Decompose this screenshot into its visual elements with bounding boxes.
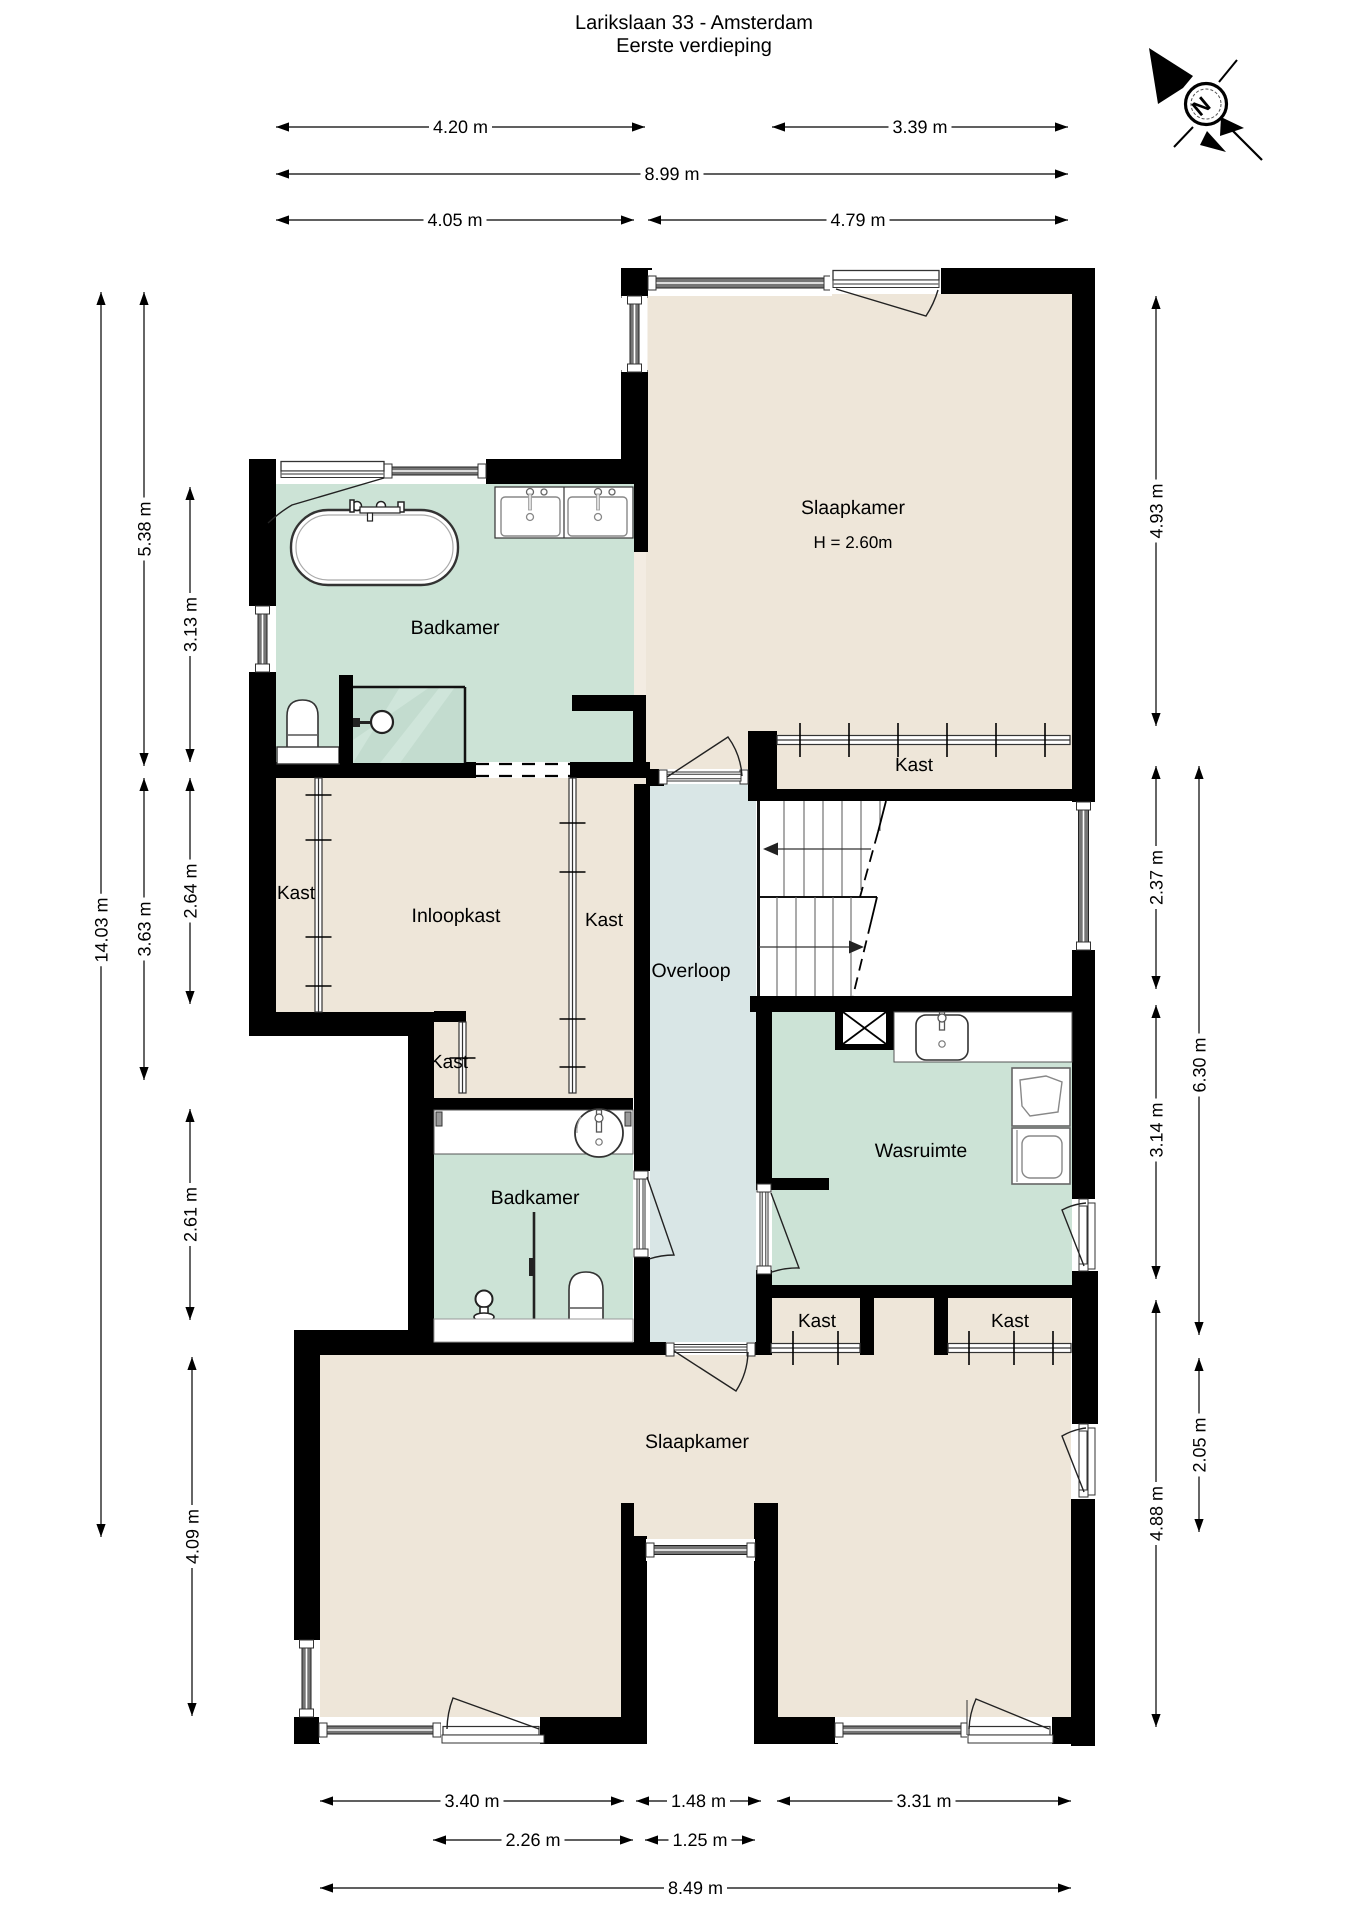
- svg-text:4.09 m: 4.09 m: [183, 1509, 203, 1564]
- svg-text:Inloopkast: Inloopkast: [412, 905, 501, 927]
- svg-text:Wasruimte: Wasruimte: [875, 1140, 967, 1162]
- svg-text:6.30 m: 6.30 m: [1190, 1037, 1210, 1092]
- svg-text:3.31 m: 3.31 m: [896, 1791, 951, 1811]
- svg-text:8.49 m: 8.49 m: [668, 1878, 723, 1898]
- svg-text:Slaapkamer: Slaapkamer: [645, 1431, 750, 1453]
- svg-text:H = 2.60m: H = 2.60m: [814, 533, 893, 552]
- svg-text:2.26 m: 2.26 m: [505, 1830, 560, 1850]
- svg-text:3.39 m: 3.39 m: [892, 117, 947, 137]
- svg-text:14.03 m: 14.03 m: [92, 897, 112, 962]
- svg-text:2.37 m: 2.37 m: [1147, 850, 1167, 905]
- svg-text:3.13 m: 3.13 m: [181, 597, 201, 652]
- svg-text:Kast: Kast: [430, 1052, 469, 1073]
- svg-text:3.63 m: 3.63 m: [135, 901, 155, 956]
- svg-text:4.05 m: 4.05 m: [427, 210, 482, 230]
- svg-text:5.38 m: 5.38 m: [135, 501, 155, 556]
- svg-text:4.20 m: 4.20 m: [433, 117, 488, 137]
- svg-text:2.64 m: 2.64 m: [181, 863, 201, 918]
- svg-text:3.14 m: 3.14 m: [1147, 1102, 1167, 1157]
- svg-text:2.05 m: 2.05 m: [1190, 1417, 1210, 1472]
- svg-text:Kast: Kast: [798, 1311, 837, 1332]
- svg-text:Slaapkamer: Slaapkamer: [801, 497, 906, 519]
- svg-text:1.48 m: 1.48 m: [671, 1791, 726, 1811]
- svg-text:4.88 m: 4.88 m: [1147, 1486, 1167, 1541]
- svg-text:Kast: Kast: [991, 1311, 1030, 1332]
- svg-text:Kast: Kast: [277, 883, 316, 904]
- svg-text:8.99 m: 8.99 m: [644, 164, 699, 184]
- svg-text:4.79 m: 4.79 m: [830, 210, 885, 230]
- svg-text:Larikslaan 33 - Amsterdam: Larikslaan 33 - Amsterdam: [575, 12, 813, 34]
- svg-text:2.61 m: 2.61 m: [181, 1187, 201, 1242]
- svg-text:Badkamer: Badkamer: [411, 617, 500, 639]
- svg-text:Eerste verdieping: Eerste verdieping: [616, 35, 772, 57]
- svg-text:4.93 m: 4.93 m: [1147, 483, 1167, 538]
- svg-text:1.25 m: 1.25 m: [672, 1830, 727, 1850]
- svg-text:Badkamer: Badkamer: [491, 1187, 580, 1209]
- svg-text:Overloop: Overloop: [651, 960, 730, 982]
- svg-text:Kast: Kast: [895, 755, 934, 776]
- svg-text:3.40 m: 3.40 m: [444, 1791, 499, 1811]
- svg-text:Kast: Kast: [585, 910, 624, 931]
